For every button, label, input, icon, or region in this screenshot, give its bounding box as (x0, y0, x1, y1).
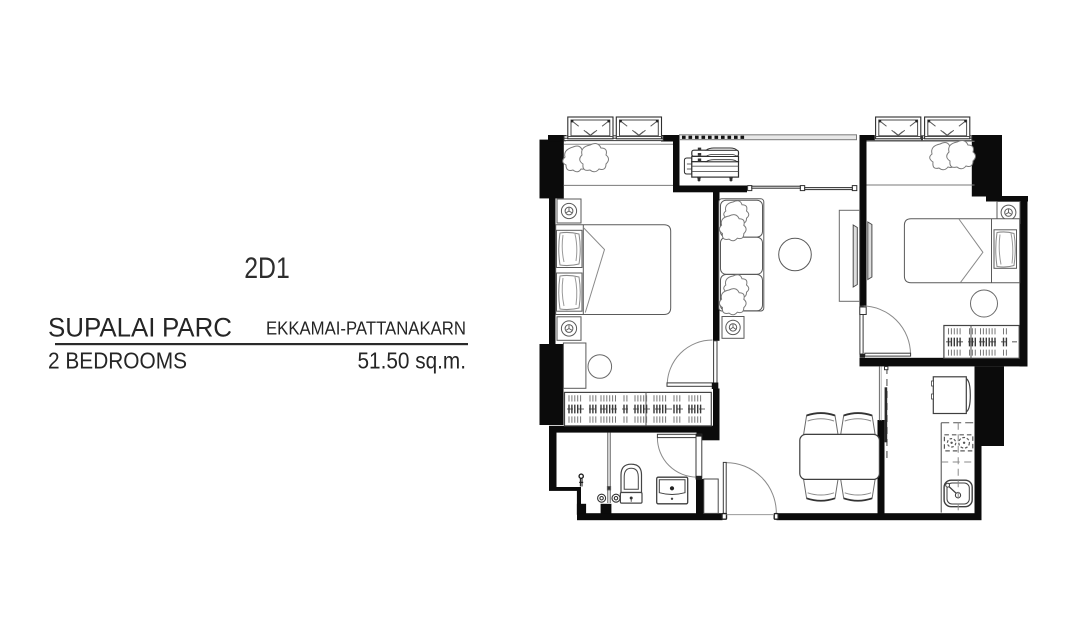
svg-text:EKKAMAI-PATTANAKARN: EKKAMAI-PATTANAKARN (266, 319, 466, 339)
svg-text:2 BEDROOMS: 2 BEDROOMS (48, 348, 187, 374)
svg-text:2D1: 2D1 (244, 252, 290, 285)
svg-text:SUPALAI PARC: SUPALAI PARC (48, 313, 232, 343)
svg-text:51.50 sq.m.: 51.50 sq.m. (358, 348, 467, 374)
